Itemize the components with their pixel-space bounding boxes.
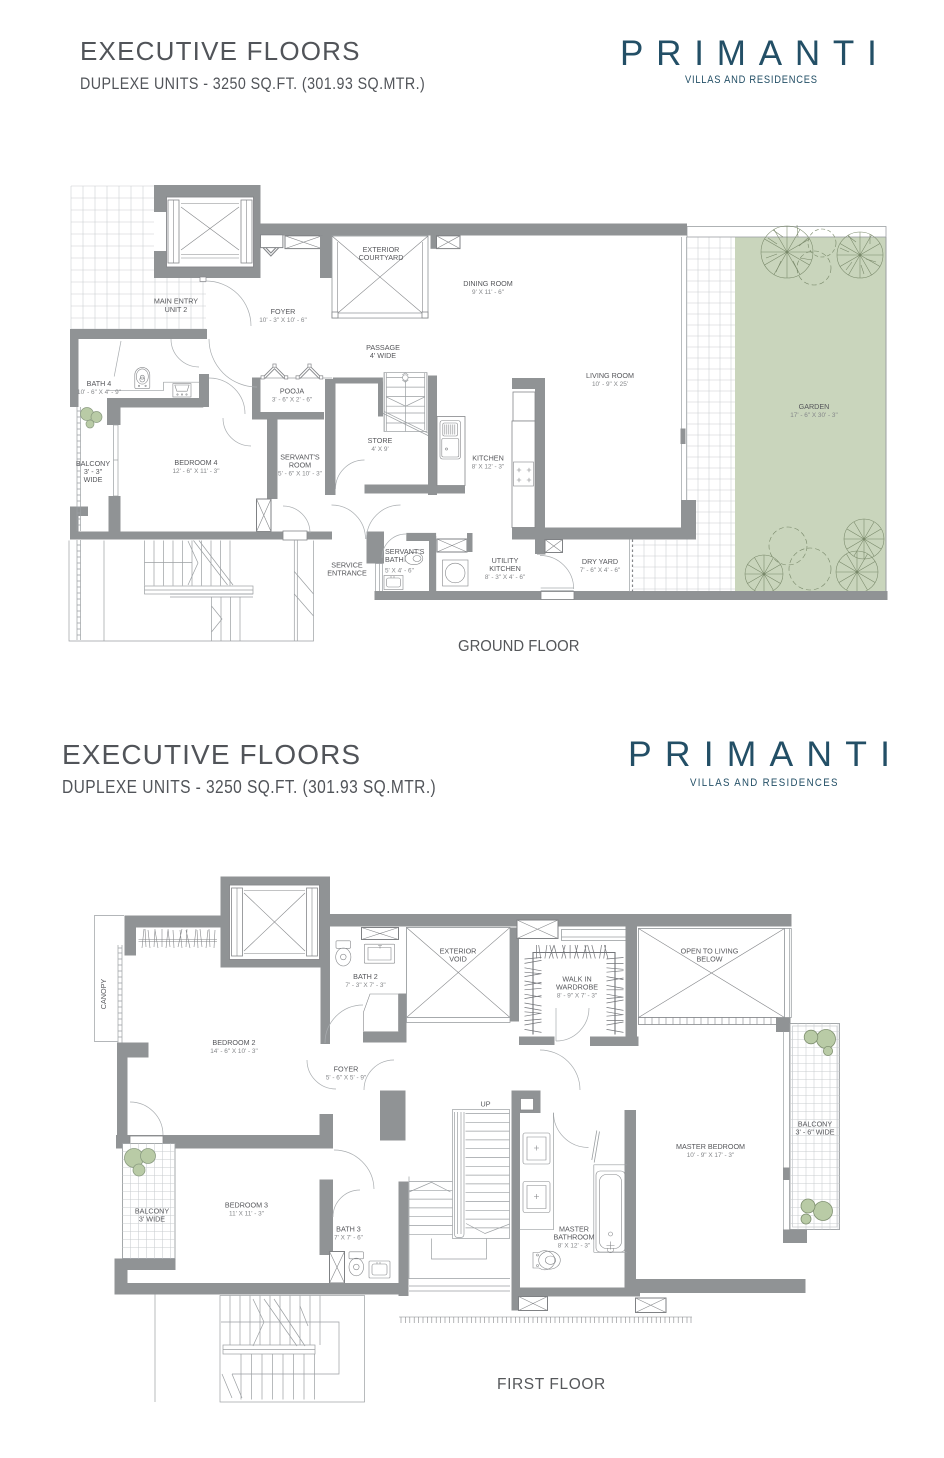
svg-text:8' X 12' - 3": 8' X 12' - 3" bbox=[472, 464, 504, 471]
svg-text:UNIT 2: UNIT 2 bbox=[165, 305, 188, 314]
svg-text:5' - 6" X 5' - 9": 5' - 6" X 5' - 9" bbox=[326, 1075, 366, 1082]
svg-text:CANOPY: CANOPY bbox=[99, 979, 108, 1010]
svg-text:VILLAS AND RESIDENCES: VILLAS AND RESIDENCES bbox=[690, 778, 839, 790]
svg-text:10' - 3" X 10' - 6": 10' - 3" X 10' - 6" bbox=[259, 317, 306, 324]
svg-text:COURTYARD: COURTYARD bbox=[359, 253, 404, 262]
svg-text:UP: UP bbox=[481, 1100, 491, 1109]
svg-text:11' X 11' - 3": 11' X 11' - 3" bbox=[229, 1211, 264, 1218]
svg-text:BATHROOM: BATHROOM bbox=[554, 1233, 595, 1242]
svg-text:5' - 6" X 10' - 3": 5' - 6" X 10' - 3" bbox=[278, 471, 322, 478]
svg-text:3' - 6" X 2' - 6": 3' - 6" X 2' - 6" bbox=[272, 397, 312, 404]
svg-text:STORE: STORE bbox=[368, 436, 393, 445]
svg-text:VOID: VOID bbox=[449, 955, 467, 964]
svg-text:BELOW: BELOW bbox=[697, 955, 723, 964]
svg-text:4' WIDE: 4' WIDE bbox=[370, 351, 396, 360]
svg-text:4' X 9': 4' X 9' bbox=[371, 446, 388, 453]
svg-text:10' - 9" X 25': 10' - 9" X 25' bbox=[592, 381, 628, 388]
svg-text:12' - 6" X 11' - 3": 12' - 6" X 11' - 3" bbox=[173, 468, 220, 475]
svg-text:17' - 6" X 30' - 3": 17' - 6" X 30' - 3" bbox=[790, 412, 837, 419]
svg-text:10' - 9" X 17' - 3": 10' - 9" X 17' - 3" bbox=[687, 1152, 734, 1159]
svg-text:VILLAS AND RESIDENCES: VILLAS AND RESIDENCES bbox=[685, 74, 818, 86]
svg-text:BEDROOM 2: BEDROOM 2 bbox=[212, 1038, 255, 1047]
svg-text:EXECUTIVE FLOORS: EXECUTIVE FLOORS bbox=[62, 739, 361, 770]
svg-text:3' WIDE: 3' WIDE bbox=[139, 1215, 165, 1224]
svg-text:BATH 3: BATH 3 bbox=[336, 1225, 361, 1234]
svg-text:7' X 7' - 6": 7' X 7' - 6" bbox=[334, 1235, 363, 1242]
svg-text:8' - 9" X 7' - 3": 8' - 9" X 7' - 3" bbox=[557, 993, 597, 1000]
svg-text:WIDE: WIDE bbox=[84, 475, 103, 484]
svg-text:GROUND FLOOR: GROUND FLOOR bbox=[458, 638, 580, 655]
svg-text:DUPLEXE UNITS - 3250 SQ.FT. (3: DUPLEXE UNITS - 3250 SQ.FT. (301.93 SQ.M… bbox=[80, 75, 425, 93]
svg-text:POOJA: POOJA bbox=[280, 387, 305, 396]
svg-text:MASTER BEDROOM: MASTER BEDROOM bbox=[676, 1142, 745, 1151]
svg-text:14' - 6" X 10' - 3": 14' - 6" X 10' - 3" bbox=[210, 1048, 257, 1055]
svg-text:8' - 3" X 4' - 6": 8' - 3" X 4' - 6" bbox=[485, 574, 525, 581]
svg-text:LIVING ROOM: LIVING ROOM bbox=[586, 371, 634, 380]
svg-text:WARDROBE: WARDROBE bbox=[556, 983, 598, 992]
svg-text:PRIMANTI: PRIMANTI bbox=[620, 34, 890, 73]
svg-text:3' - 6" WIDE: 3' - 6" WIDE bbox=[795, 1128, 834, 1137]
svg-text:ROOM: ROOM bbox=[289, 461, 311, 470]
svg-text:ENTRANCE: ENTRANCE bbox=[327, 569, 367, 578]
svg-text:FOYER: FOYER bbox=[271, 307, 296, 316]
svg-text:5' X 4' - 6": 5' X 4' - 6" bbox=[385, 568, 414, 575]
svg-text:PRIMANTI: PRIMANTI bbox=[628, 734, 903, 774]
svg-text:9' X 11' - 6": 9' X 11' - 6" bbox=[472, 289, 504, 296]
svg-text:BATH 2: BATH 2 bbox=[353, 972, 378, 981]
svg-text:BEDROOM 4: BEDROOM 4 bbox=[174, 458, 217, 467]
svg-text:8' X 12' - 3": 8' X 12' - 3" bbox=[558, 1243, 590, 1250]
svg-text:DUPLEXE UNITS - 3250 SQ.FT. (3: DUPLEXE UNITS - 3250 SQ.FT. (301.93 SQ.M… bbox=[62, 777, 436, 798]
svg-text:BATH: BATH bbox=[385, 555, 404, 564]
svg-text:7' - 6" X 4' - 6": 7' - 6" X 4' - 6" bbox=[580, 567, 620, 574]
svg-text:BEDROOM 3: BEDROOM 3 bbox=[225, 1201, 268, 1210]
svg-text:BATH 4: BATH 4 bbox=[87, 379, 112, 388]
svg-text:GARDEN: GARDEN bbox=[799, 402, 830, 411]
svg-text:7' - 3" X 7' - 3": 7' - 3" X 7' - 3" bbox=[345, 982, 385, 989]
svg-text:EXECUTIVE FLOORS: EXECUTIVE FLOORS bbox=[80, 36, 361, 66]
svg-text:KITCHEN: KITCHEN bbox=[489, 564, 521, 573]
svg-text:DINING ROOM: DINING ROOM bbox=[463, 279, 513, 288]
svg-text:10' - 6" X 4' - 9": 10' - 6" X 4' - 9" bbox=[77, 389, 121, 396]
svg-text:FIRST FLOOR: FIRST FLOOR bbox=[497, 1376, 606, 1393]
svg-text:KITCHEN: KITCHEN bbox=[472, 454, 504, 463]
svg-text:DRY YARD: DRY YARD bbox=[582, 557, 618, 566]
svg-text:FOYER: FOYER bbox=[334, 1065, 359, 1074]
